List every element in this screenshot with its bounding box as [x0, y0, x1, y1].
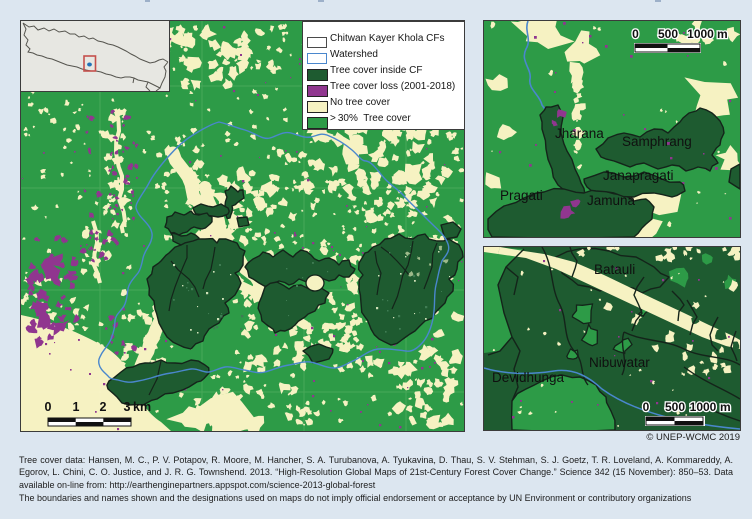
- svg-text:Devidhunga: Devidhunga: [492, 370, 565, 385]
- svg-text:3: 3: [124, 400, 131, 414]
- svg-text:0: 0: [45, 400, 52, 414]
- svg-text:1000: 1000: [690, 400, 717, 414]
- svg-text:2: 2: [100, 400, 107, 414]
- svg-text:0: 0: [643, 400, 650, 414]
- svg-text:Jharana: Jharana: [555, 126, 604, 141]
- svg-text:Samphrang: Samphrang: [622, 134, 692, 149]
- svg-text:Janapragati: Janapragati: [603, 168, 674, 183]
- svg-text:km: km: [133, 400, 151, 414]
- svg-text:Pragati: Pragati: [500, 188, 543, 203]
- svg-text:1000: 1000: [687, 27, 714, 41]
- svg-text:Batauli: Batauli: [594, 262, 635, 277]
- svg-text:Jamuna: Jamuna: [587, 193, 636, 208]
- svg-text:0: 0: [632, 27, 639, 41]
- svg-text:m: m: [720, 400, 731, 414]
- svg-text:500: 500: [658, 27, 678, 41]
- svg-text:500: 500: [665, 400, 685, 414]
- svg-text:1: 1: [73, 400, 80, 414]
- svg-text:Nibuwatar: Nibuwatar: [589, 355, 650, 370]
- svg-text:m: m: [717, 27, 728, 41]
